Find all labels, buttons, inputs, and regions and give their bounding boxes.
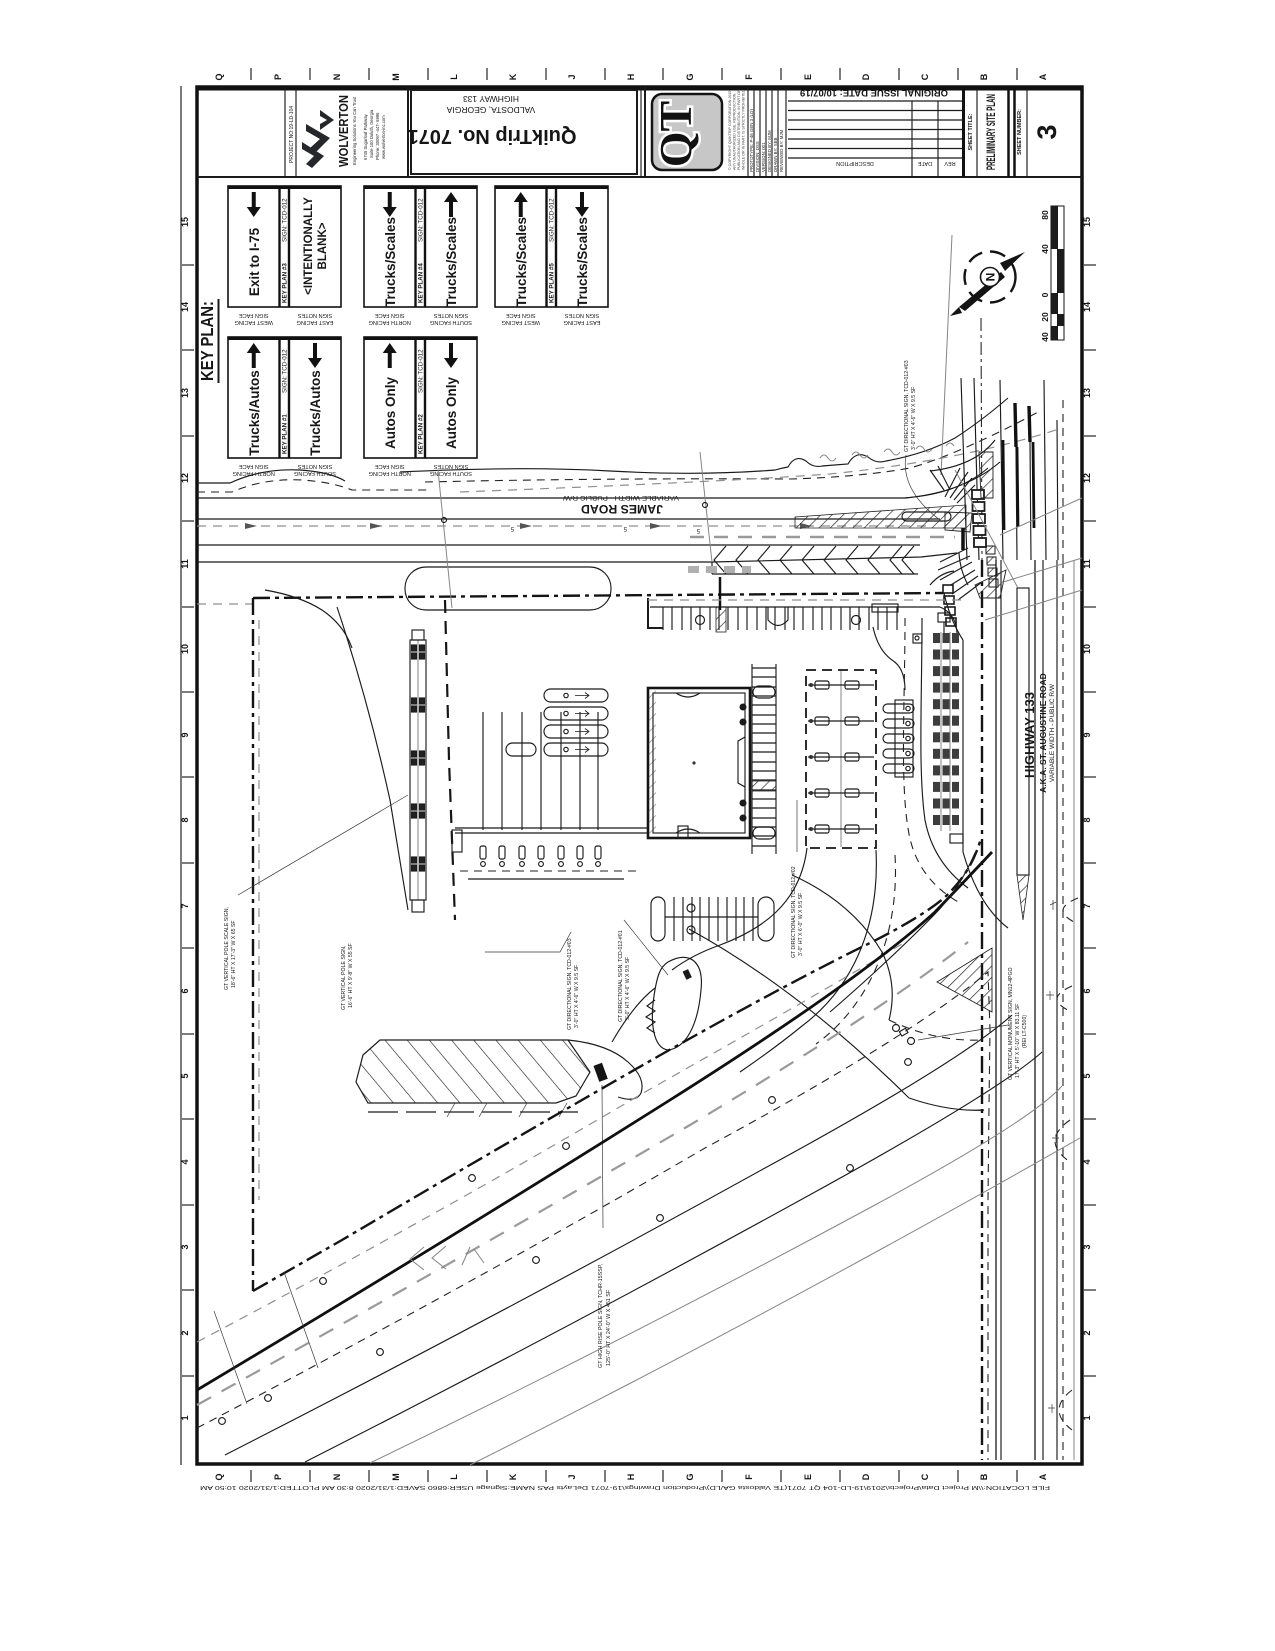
svg-text:J: J bbox=[567, 1474, 577, 1479]
svg-text:SIGN FACE: SIGN FACE bbox=[375, 463, 405, 469]
svg-text:KEY PLAN #1: KEY PLAN #1 bbox=[281, 414, 288, 454]
svg-text:11: 11 bbox=[180, 559, 190, 569]
svg-text:WHOLE OR IN PART, IS STRICTLY: WHOLE OR IN PART, IS STRICTLY PROHIBITED… bbox=[742, 89, 746, 170]
svg-text:SIGN: TCD-012: SIGN: TCD-012 bbox=[281, 349, 288, 393]
svg-text:4: 4 bbox=[1082, 1159, 1092, 1164]
svg-text:DIVISION: DSS: DIVISION: DSS bbox=[755, 141, 760, 172]
svg-text:GT DIRECTIONAL SIGN, TCD-012-#: GT DIRECTIONAL SIGN, TCD-012-#01 bbox=[618, 930, 624, 1022]
svg-text:SIGN NOTES: SIGN NOTES bbox=[297, 312, 332, 318]
svg-text:N: N bbox=[332, 1474, 342, 1481]
svg-text:HIGHWAY 133: HIGHWAY 133 bbox=[463, 94, 519, 104]
svg-text:L: L bbox=[449, 1474, 459, 1480]
svg-text:GT VERTICAL POLE SIGN,: GT VERTICAL POLE SIGN, bbox=[341, 946, 347, 1010]
svg-text:3: 3 bbox=[180, 1244, 190, 1249]
svg-text:G: G bbox=[685, 1473, 695, 1480]
svg-text:P: P bbox=[273, 74, 283, 80]
svg-text:KEY PLAN #4: KEY PLAN #4 bbox=[417, 263, 424, 303]
svg-text:H: H bbox=[626, 1474, 636, 1481]
svg-text:www.wolverton-inc.com: www.wolverton-inc.com bbox=[381, 115, 386, 159]
svg-text:16'-6" HT X 9'-8" W X 55 SF: 16'-6" HT X 9'-8" W X 55 SF bbox=[348, 943, 354, 1008]
svg-text:G: G bbox=[685, 73, 695, 80]
svg-text:PUBLICATION AND DISTRIBUTION,: PUBLICATION AND DISTRIBUTION, IN PART OR bbox=[737, 89, 741, 170]
svg-text:QuikTrip No. 7071: QuikTrip No. 7071 bbox=[408, 125, 577, 147]
svg-text:M: M bbox=[391, 73, 401, 81]
svg-text:Autos Only: Autos Only bbox=[383, 377, 398, 449]
svg-text:SIGN NOTES: SIGN NOTES bbox=[433, 463, 468, 469]
svg-text:Suite 100 Duluth, Georgia: Suite 100 Duluth, Georgia bbox=[369, 109, 374, 158]
svg-text:5: 5 bbox=[180, 1073, 190, 1078]
svg-text:2: 2 bbox=[180, 1330, 190, 1335]
svg-text:E: E bbox=[803, 1474, 813, 1480]
svg-text:SIGN: TCD-012: SIGN: TCD-012 bbox=[417, 349, 424, 393]
svg-text:3'-0" HT X 4'-6" W X 9.5 SF: 3'-0" HT X 4'-6" W X 9.5 SF bbox=[625, 957, 631, 1020]
svg-text:DESIGNED BY: MJM: DESIGNED BY: MJM bbox=[767, 130, 772, 172]
svg-text:13: 13 bbox=[180, 388, 190, 398]
svg-text:12: 12 bbox=[1082, 473, 1092, 483]
svg-text:Engineering Solutions You Can: Engineering Solutions You Can Trust bbox=[352, 96, 357, 165]
svg-text:Q: Q bbox=[214, 73, 224, 80]
svg-text:14: 14 bbox=[1082, 302, 1092, 312]
svg-text:A: A bbox=[1038, 1473, 1048, 1480]
svg-text:D: D bbox=[861, 73, 871, 80]
svg-text:REVIEWED BY: MJM: REVIEWED BY: MJM bbox=[779, 129, 784, 172]
svg-text:GT HIGH RISE POLE SIGN, TCHR-1: GT HIGH RISE POLE SIGN, TCHR-15SSP, bbox=[598, 1263, 604, 1368]
svg-text:20: 20 bbox=[1040, 312, 1050, 322]
svg-text:SIGN: TCD-012: SIGN: TCD-012 bbox=[417, 198, 424, 242]
svg-text:WEST FACING: WEST FACING bbox=[502, 319, 540, 325]
svg-text:18'-6" HT X 17'-3" W X 65 SF: 18'-6" HT X 17'-3" W X 65 SF bbox=[231, 920, 237, 988]
svg-text:VARIABLE WIDTH - PUBLIC R/W: VARIABLE WIDTH - PUBLIC R/W bbox=[562, 494, 679, 501]
svg-text:ANY UNAUTHORIZED USE, REPRODUC: ANY UNAUTHORIZED USE, REPRODUCTION, bbox=[733, 93, 737, 170]
svg-text:6: 6 bbox=[1082, 988, 1092, 993]
svg-text:13: 13 bbox=[1082, 388, 1092, 398]
svg-text:9: 9 bbox=[180, 732, 190, 737]
svg-text:40: 40 bbox=[1040, 244, 1050, 254]
svg-text:3'-0" HT X 4'-6" W X 9.5 SF: 3'-0" HT X 4'-6" W X 9.5 SF bbox=[574, 965, 580, 1028]
svg-text:7: 7 bbox=[180, 903, 190, 908]
svg-text:SOUTH FACING: SOUTH FACING bbox=[430, 319, 472, 325]
svg-text:Trucks/Scales: Trucks/Scales bbox=[444, 217, 459, 307]
svg-text:4: 4 bbox=[180, 1159, 190, 1164]
svg-text:GT DIRECTIONAL SIGN, TCD-012-#: GT DIRECTIONAL SIGN, TCD-012-#03 bbox=[904, 360, 910, 452]
svg-text:© COPYRIGHT QUIKTRIP CORPORATI: © COPYRIGHT QUIKTRIP CORPORATION 2019. bbox=[728, 90, 732, 170]
svg-text:DESCRIPTION: DESCRIPTION bbox=[836, 160, 874, 166]
svg-text:EAST FACING: EAST FACING bbox=[297, 319, 334, 325]
svg-text:VARIABLE WIDTH - PUBLIC R/W: VARIABLE WIDTH - PUBLIC R/W bbox=[1049, 683, 1056, 782]
svg-text:JAMES ROAD: JAMES ROAD bbox=[581, 502, 663, 516]
svg-text:E: E bbox=[803, 74, 813, 80]
svg-text:QT: QT bbox=[650, 101, 701, 167]
svg-text:6: 6 bbox=[180, 988, 190, 993]
svg-text:L: L bbox=[449, 74, 459, 80]
svg-text:80: 80 bbox=[1040, 210, 1050, 220]
svg-text:7: 7 bbox=[1082, 903, 1092, 908]
svg-text:PROTOTYPE: P-46 GEN 3 (LD): PROTOTYPE: P-46 GEN 3 (LD) bbox=[749, 109, 754, 172]
svg-text:15: 15 bbox=[180, 217, 190, 227]
svg-text:2: 2 bbox=[1082, 1330, 1092, 1335]
svg-text:VALDOSTA, GEORGIA: VALDOSTA, GEORGIA bbox=[446, 105, 535, 115]
svg-text:40: 40 bbox=[1040, 332, 1050, 342]
svg-text:SIGN FACE: SIGN FACE bbox=[506, 312, 536, 318]
svg-text:EAST FACING: EAST FACING bbox=[564, 319, 601, 325]
svg-text:10: 10 bbox=[180, 644, 190, 654]
svg-text:Q: Q bbox=[214, 1473, 224, 1480]
svg-text:DRAWN BY: SEB: DRAWN BY: SEB bbox=[773, 137, 778, 172]
svg-text:PRELIMINARY SITE PLAN: PRELIMINARY SITE PLAN bbox=[986, 94, 998, 170]
svg-text:K: K bbox=[508, 73, 518, 80]
svg-text:KEY PLAN #2: KEY PLAN #2 bbox=[417, 414, 424, 454]
svg-text:Autos Only: Autos Only bbox=[444, 377, 459, 449]
svg-text:NORTH FACING: NORTH FACING bbox=[369, 319, 411, 325]
svg-text:15: 15 bbox=[1082, 217, 1092, 227]
svg-text:SIGN FACE: SIGN FACE bbox=[239, 312, 269, 318]
svg-text:M: M bbox=[391, 1473, 401, 1481]
svg-text:REV: REV bbox=[944, 160, 956, 166]
svg-text:8: 8 bbox=[180, 817, 190, 822]
svg-text:C: C bbox=[920, 73, 930, 80]
svg-text:F: F bbox=[744, 74, 754, 80]
svg-text:Trucks/Autos: Trucks/Autos bbox=[247, 370, 262, 456]
svg-text:WEST FACING: WEST FACING bbox=[235, 319, 273, 325]
svg-text:SIGN NOTES: SIGN NOTES bbox=[564, 312, 599, 318]
svg-text:BLANK>: BLANK> bbox=[317, 222, 329, 269]
svg-text:GT VERTICAL MONUMENT SIGN, MN1: GT VERTICAL MONUMENT SIGN, MN12-4PGO bbox=[1008, 967, 1014, 1080]
svg-text:11: 11 bbox=[1082, 559, 1092, 569]
svg-text:SIGN FACE: SIGN FACE bbox=[375, 312, 405, 318]
svg-text:J: J bbox=[567, 74, 577, 79]
svg-text:NORTH FACING: NORTH FACING bbox=[369, 470, 411, 476]
svg-text:0: 0 bbox=[1040, 292, 1050, 297]
svg-text:N: N bbox=[332, 74, 342, 81]
svg-text:5: 5 bbox=[1082, 1073, 1092, 1078]
svg-text:17'-3" HT X 5'-10" W X 83.11 S: 17'-3" HT X 5'-10" W X 83.11 SF bbox=[1015, 1004, 1021, 1078]
svg-text:9: 9 bbox=[1082, 732, 1092, 737]
svg-text:ORIGINAL ISSUE DATE: 10/07/19: ORIGINAL ISSUE DATE: 10/07/19 bbox=[800, 87, 948, 98]
svg-text:VERSION: 001: VERSION: 001 bbox=[761, 142, 766, 172]
svg-text:Trucks/Scales: Trucks/Scales bbox=[575, 217, 590, 307]
svg-text:SHEET TITLE:: SHEET TITLE: bbox=[968, 113, 974, 150]
svg-text:H: H bbox=[626, 74, 636, 81]
svg-text:B: B bbox=[979, 1473, 989, 1480]
svg-text:P: P bbox=[273, 1474, 283, 1480]
svg-text:10: 10 bbox=[1082, 644, 1092, 654]
svg-text:125'-0" HT X 24'-0" W X 451 SF: 125'-0" HT X 24'-0" W X 451 SF bbox=[606, 1289, 612, 1366]
svg-text:6745 Sugarloaf Parkway: 6745 Sugarloaf Parkway bbox=[363, 113, 368, 160]
svg-text:1: 1 bbox=[180, 1415, 190, 1420]
svg-text:DATE: DATE bbox=[918, 160, 933, 166]
svg-text:D: D bbox=[861, 1473, 871, 1480]
svg-text:GT DIRECTIONAL SIGN, TCD-012-#: GT DIRECTIONAL SIGN, TCD-012-#02 bbox=[791, 866, 797, 958]
svg-text:GT DIRECTIONAL SIGN, TCD-012-#: GT DIRECTIONAL SIGN, TCD-012-#03 bbox=[567, 938, 573, 1030]
svg-text:SIGN FACE: SIGN FACE bbox=[239, 463, 269, 469]
svg-text:KEY PLAN:: KEY PLAN: bbox=[197, 301, 217, 381]
svg-text:<INTENTIONALLY: <INTENTIONALLY bbox=[303, 197, 315, 295]
svg-text:N: N bbox=[984, 273, 998, 282]
svg-text:WOLVERTON: WOLVERTON bbox=[336, 95, 351, 167]
svg-text:(REI LT-C500): (REI LT-C500) bbox=[1022, 1015, 1028, 1048]
svg-text:14: 14 bbox=[180, 302, 190, 312]
svg-text:K: K bbox=[508, 1473, 518, 1480]
svg-text:Trucks/Scales: Trucks/Scales bbox=[514, 217, 529, 307]
svg-text:3: 3 bbox=[1082, 1244, 1092, 1249]
svg-text:A: A bbox=[1038, 73, 1048, 80]
svg-text:F: F bbox=[744, 1474, 754, 1480]
svg-text:8: 8 bbox=[1082, 817, 1092, 822]
svg-text:B: B bbox=[979, 73, 989, 80]
svg-text:SIGN: TCD-012: SIGN: TCD-012 bbox=[281, 198, 288, 242]
svg-text:Trucks/Scales: Trucks/Scales bbox=[383, 217, 398, 307]
svg-text:SHEET NUMBER:: SHEET NUMBER: bbox=[1017, 109, 1023, 155]
svg-text:1: 1 bbox=[1082, 1415, 1092, 1420]
svg-text:3'-0" HT X 4'-6" W X 9.5 SF: 3'-0" HT X 4'-6" W X 9.5 SF bbox=[911, 387, 917, 450]
svg-text:3'-0" HT X 6'-0" W X 9.5 SF: 3'-0" HT X 6'-0" W X 9.5 SF bbox=[798, 893, 804, 956]
svg-text:12: 12 bbox=[180, 473, 190, 483]
svg-text:KEY PLAN #3: KEY PLAN #3 bbox=[281, 263, 288, 303]
svg-text:SIGN NOTES: SIGN NOTES bbox=[297, 463, 332, 469]
svg-text:Trucks/Autos: Trucks/Autos bbox=[308, 370, 323, 456]
svg-text:Exit to I-75: Exit to I-75 bbox=[247, 227, 262, 296]
svg-text:3: 3 bbox=[1032, 124, 1062, 139]
svg-text:KEY PLAN #5: KEY PLAN #5 bbox=[548, 263, 555, 303]
svg-text:Phone: 30097 -447- 6996: Phone: 30097 -447- 6996 bbox=[375, 112, 380, 160]
svg-text:HIGHWAY 133: HIGHWAY 133 bbox=[1022, 692, 1037, 778]
svg-text:C: C bbox=[920, 1473, 930, 1480]
svg-text:PROJECT NO:19-LD-104: PROJECT NO:19-LD-104 bbox=[289, 106, 295, 163]
svg-text:FILE LOCATION:\\M Project Dat: FILE LOCATION:\\M Project Data\Projects\… bbox=[200, 1484, 1050, 1490]
svg-text:A.K.A. ST. AUGUSTINE ROAD: A.K.A. ST. AUGUSTINE ROAD bbox=[1038, 673, 1048, 793]
svg-text:SIGN: TCD-012: SIGN: TCD-012 bbox=[548, 198, 555, 242]
svg-text:SIGN NOTES: SIGN NOTES bbox=[433, 312, 468, 318]
svg-text:GT VERTICAL POLE SCALE SIGN,: GT VERTICAL POLE SCALE SIGN, bbox=[224, 907, 230, 990]
